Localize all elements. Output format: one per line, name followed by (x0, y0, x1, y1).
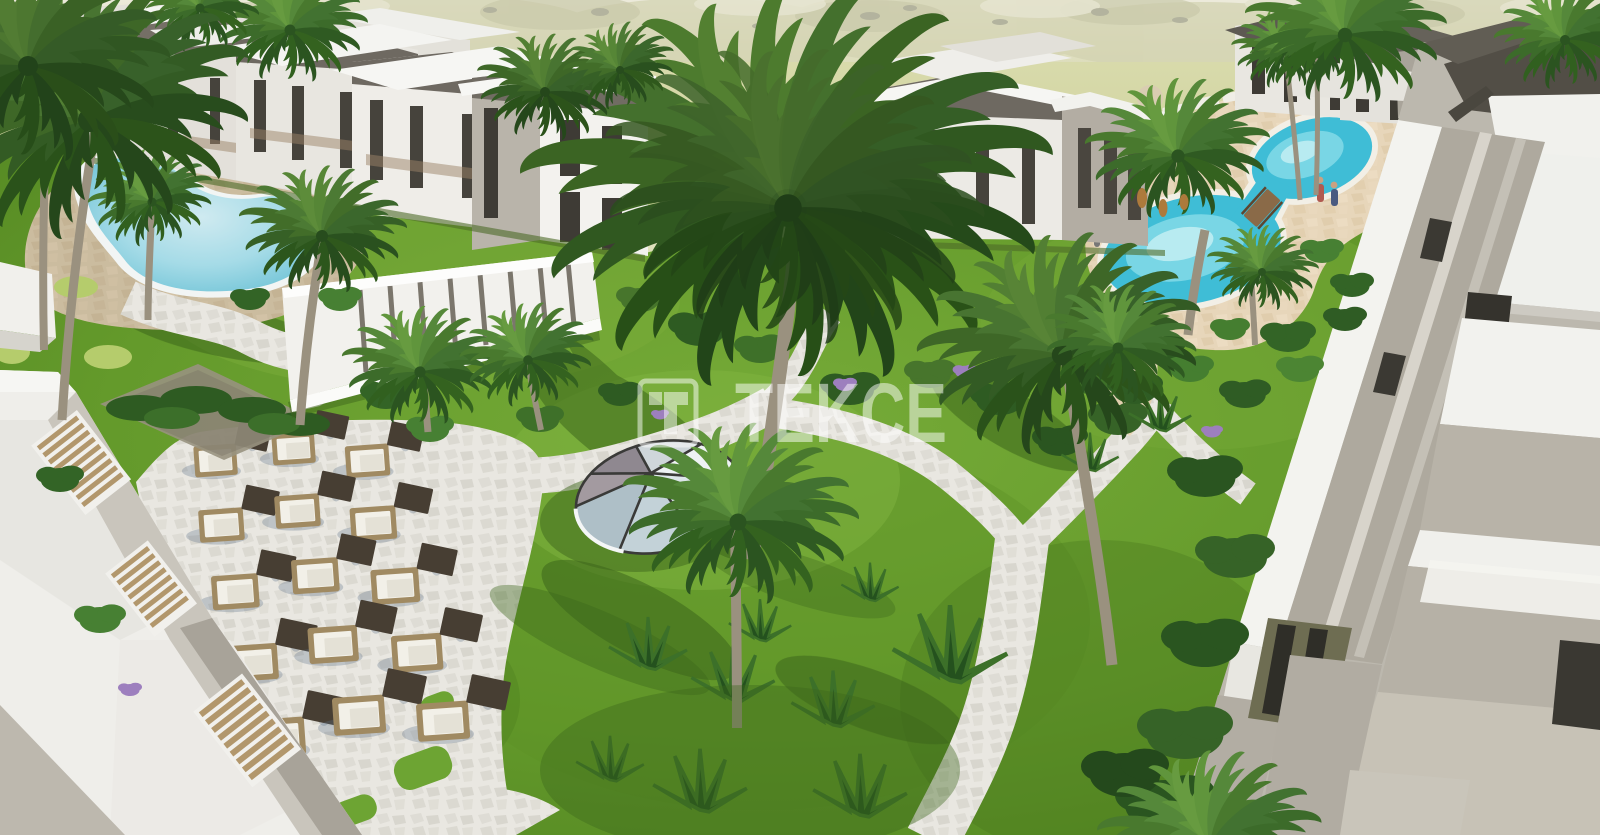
svg-text:TEKCE: TEKCE (735, 366, 947, 460)
